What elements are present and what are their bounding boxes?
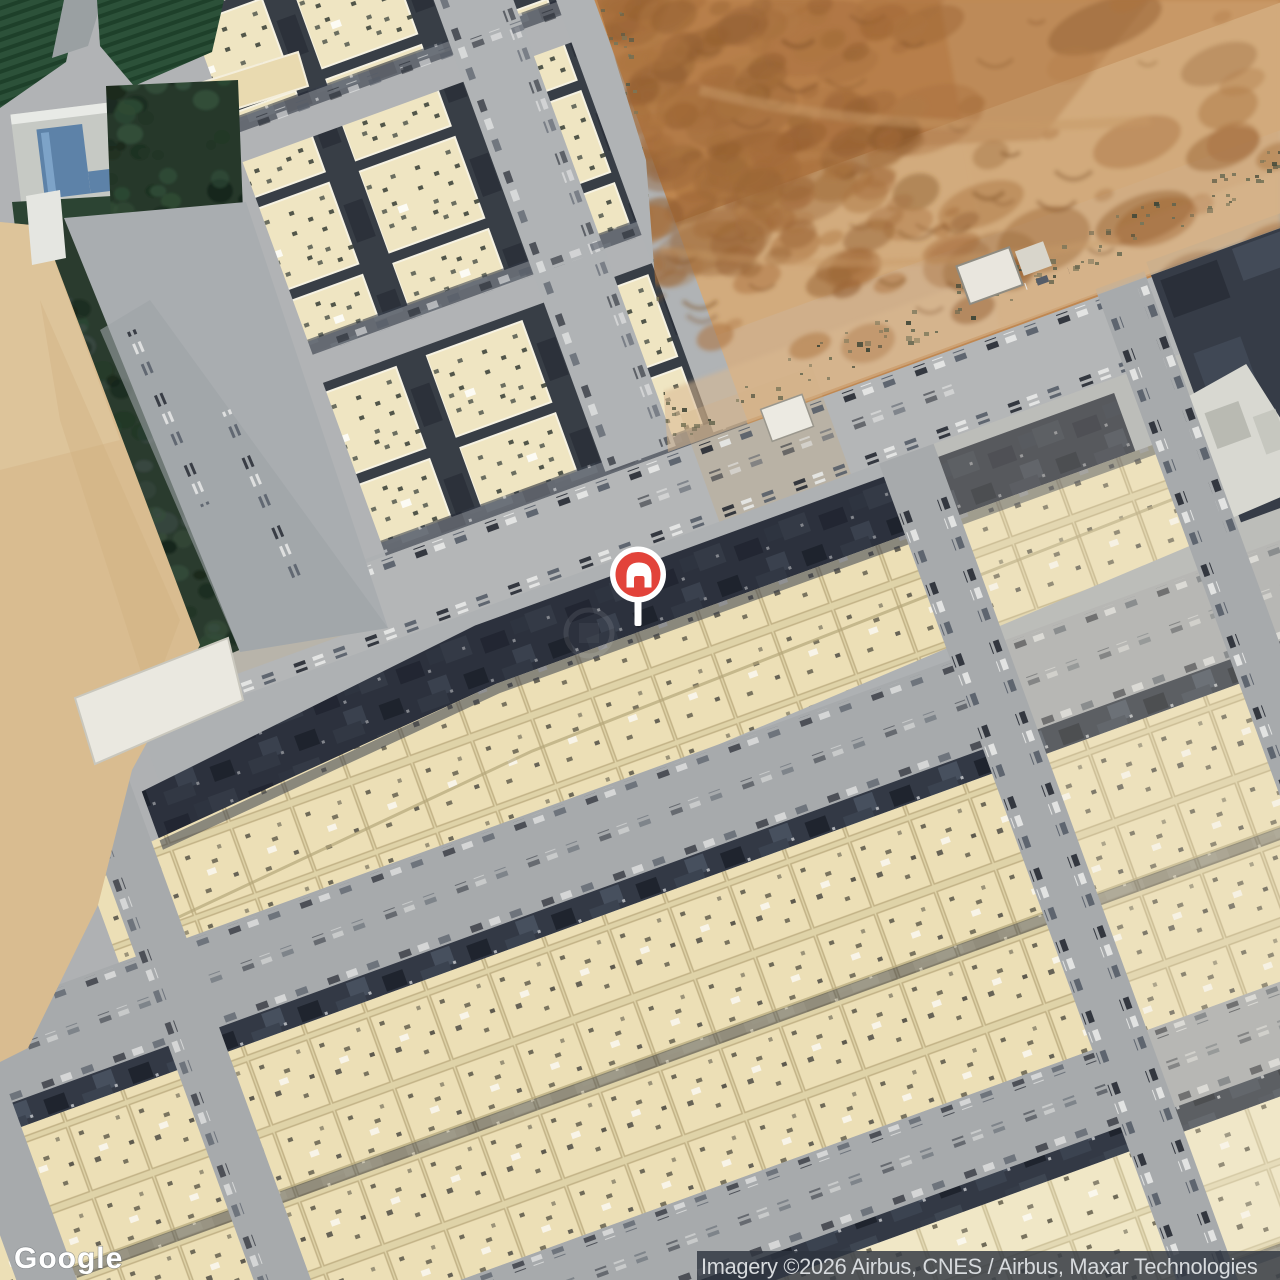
svg-text:Imagery ©2026 Airbus, CNES / A: Imagery ©2026 Airbus, CNES / Airbus, Max… <box>701 1254 1258 1279</box>
svg-text:Google: Google <box>14 1242 123 1275</box>
